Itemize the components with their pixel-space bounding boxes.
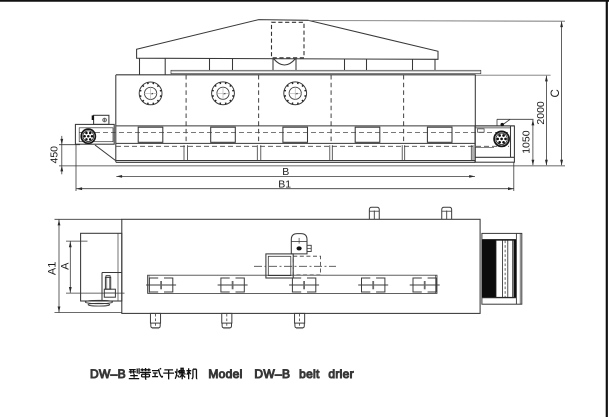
svg-text:DW–B: DW–B: [254, 367, 290, 381]
svg-text:B: B: [282, 166, 289, 178]
svg-text:A: A: [59, 262, 71, 270]
svg-text:DW–B: DW–B: [90, 367, 126, 381]
svg-text:Model: Model: [208, 367, 242, 381]
svg-text:A1: A1: [47, 262, 59, 275]
svg-text:C: C: [550, 89, 562, 97]
svg-text:2000: 2000: [535, 101, 547, 125]
svg-text:belt: belt: [299, 367, 320, 381]
svg-text:1050: 1050: [521, 130, 533, 154]
svg-text:450: 450: [48, 146, 60, 164]
svg-text:B1: B1: [278, 178, 291, 190]
svg-text:drier: drier: [328, 367, 354, 381]
